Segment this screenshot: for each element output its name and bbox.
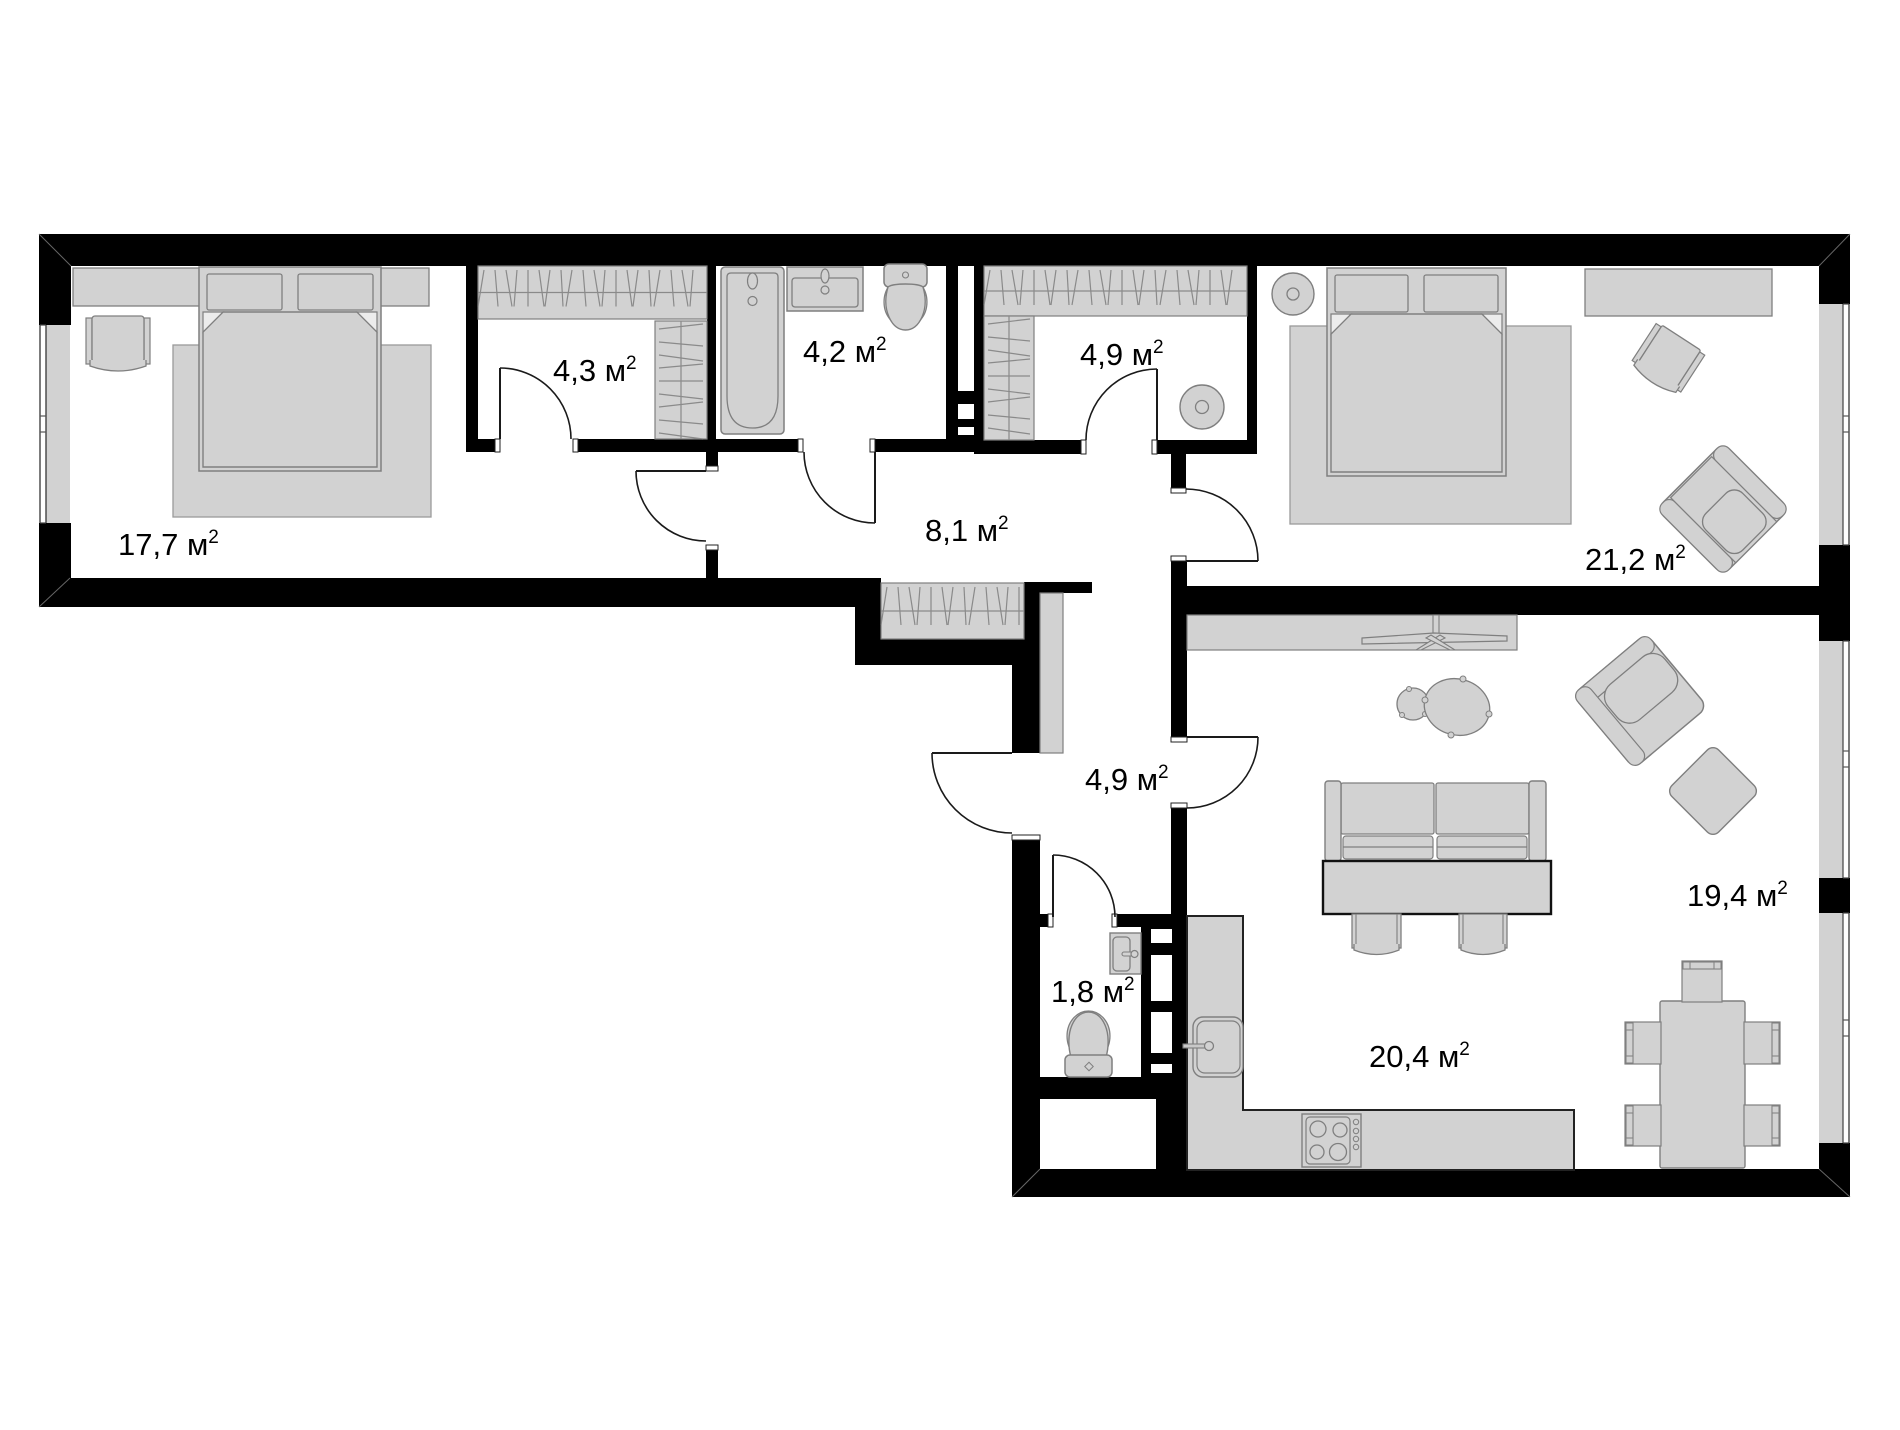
svg-text:21,2 м2: 21,2 м2: [1585, 542, 1686, 577]
svg-text:19,4 м2: 19,4 м2: [1687, 878, 1788, 913]
svg-text:20,4 м2: 20,4 м2: [1369, 1039, 1470, 1074]
svg-text:4,9 м2: 4,9 м2: [1085, 762, 1169, 797]
svg-text:4,9 м2: 4,9 м2: [1080, 337, 1164, 372]
svg-text:17,7 м2: 17,7 м2: [118, 527, 219, 562]
svg-text:1,8 м2: 1,8 м2: [1051, 974, 1135, 1009]
svg-text:4,2 м2: 4,2 м2: [803, 334, 887, 369]
svg-text:8,1 м2: 8,1 м2: [925, 513, 1009, 548]
svg-text:4,3 м2: 4,3 м2: [553, 353, 637, 388]
